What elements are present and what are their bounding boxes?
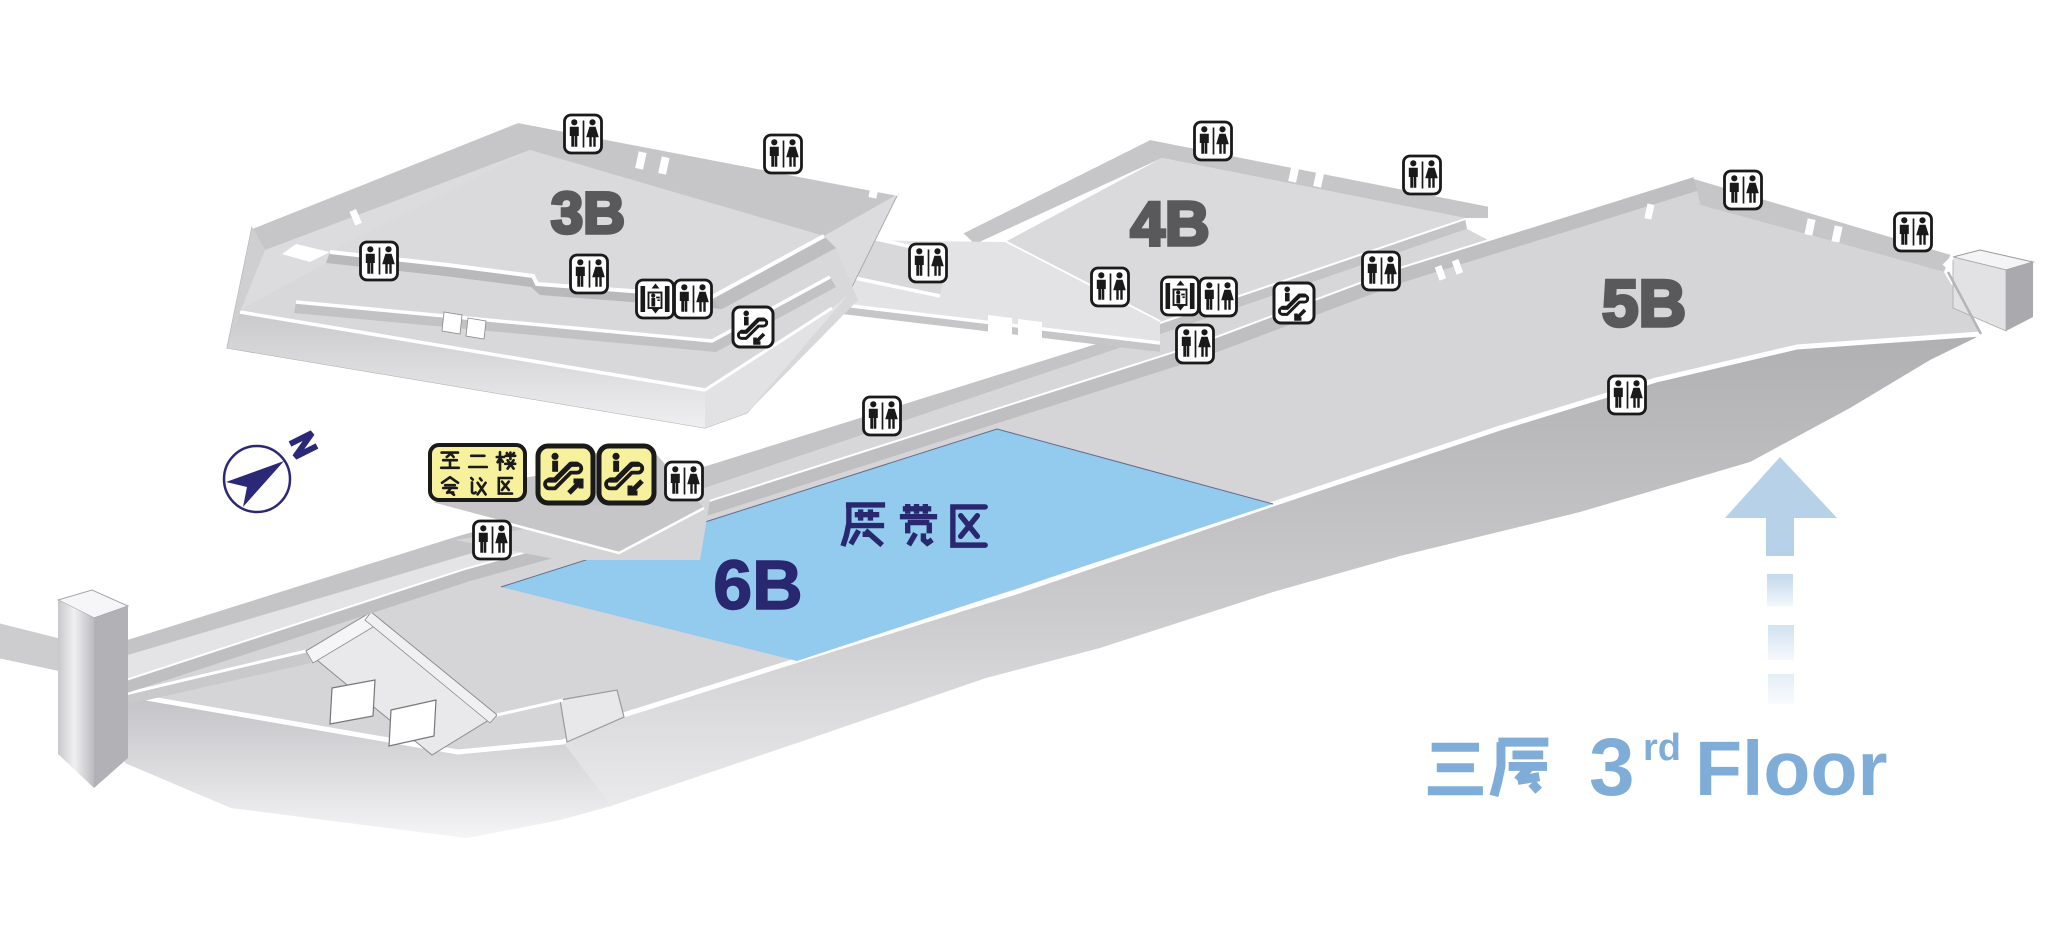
svg-text:6B: 6B: [713, 546, 802, 624]
svg-text:Floor: Floor: [1695, 726, 1887, 812]
svg-text:3B: 3B: [551, 181, 625, 246]
svg-text:rd: rd: [1643, 727, 1681, 769]
svg-text:4B: 4B: [1130, 190, 1209, 259]
svg-text:5B: 5B: [1602, 266, 1686, 340]
svg-text:3: 3: [1589, 722, 1635, 813]
